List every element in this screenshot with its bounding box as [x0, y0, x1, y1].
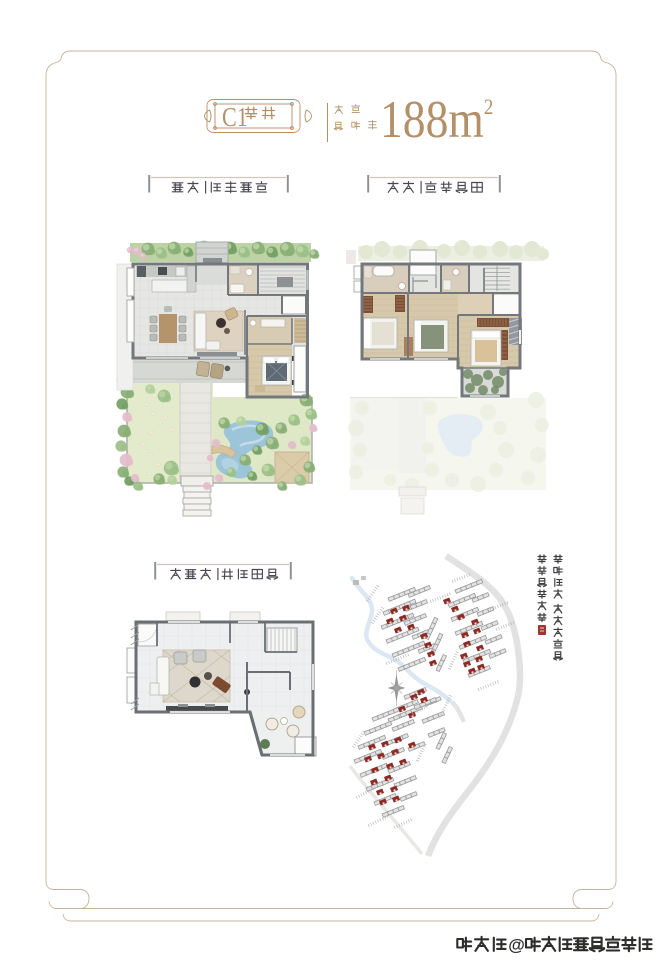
svg-text:@: @ [508, 936, 525, 955]
